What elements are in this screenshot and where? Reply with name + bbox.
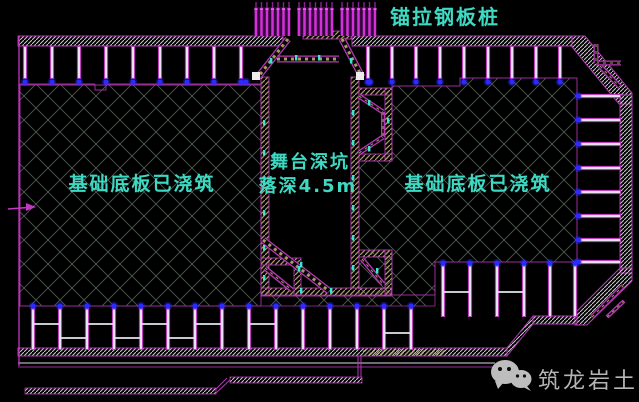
pile-node-dot bbox=[509, 79, 514, 84]
label-anchor-sheet-pile: 锚拉钢板桩 bbox=[390, 5, 500, 29]
survey-tick bbox=[263, 275, 265, 281]
wechat-icon bbox=[491, 360, 532, 391]
pile-node-dot bbox=[76, 79, 81, 84]
pile-node-dot bbox=[211, 79, 216, 84]
pile-node-dot bbox=[440, 260, 445, 265]
pile-node-dot bbox=[138, 303, 143, 308]
pile-node-dot bbox=[408, 303, 413, 308]
survey-tick bbox=[352, 235, 354, 241]
survey-tick bbox=[352, 265, 354, 271]
pit-bump-bottom bbox=[359, 154, 392, 161]
survey-tick bbox=[387, 118, 389, 124]
pile-node-dot bbox=[219, 303, 224, 308]
pile-node-dot bbox=[103, 79, 108, 84]
survey-tick bbox=[352, 110, 354, 116]
pile-node-dot bbox=[575, 237, 580, 242]
survey-tick bbox=[263, 120, 265, 126]
pile-node-dot bbox=[327, 303, 332, 308]
survey-tick bbox=[368, 146, 370, 152]
survey-tick bbox=[350, 58, 352, 64]
pile-node-dot bbox=[575, 189, 580, 194]
pile-node-dot bbox=[30, 303, 35, 308]
pile-node-dot bbox=[437, 79, 442, 84]
survey-tick bbox=[330, 288, 332, 294]
pit-box-right bbox=[385, 250, 392, 295]
label-pit-line2: 落深4.5m bbox=[259, 175, 358, 197]
survey-tick bbox=[295, 55, 297, 61]
pile-node-dot bbox=[575, 141, 580, 146]
pile-node-dot bbox=[243, 79, 248, 84]
survey-tick bbox=[263, 210, 265, 216]
pile-node-dot bbox=[246, 303, 251, 308]
corner-node bbox=[356, 72, 364, 80]
pit-bump-right bbox=[385, 88, 392, 161]
pile-node-dot bbox=[575, 165, 580, 170]
survey-tick bbox=[263, 150, 265, 156]
pile-node-dot bbox=[49, 79, 54, 84]
pile-node-dot bbox=[57, 303, 62, 308]
pile-node-dot bbox=[111, 303, 116, 308]
pile-node-dot bbox=[575, 93, 580, 98]
pile-node-dot bbox=[84, 303, 89, 308]
watermark: 筑龙岩土 bbox=[491, 360, 638, 394]
slab-left-region bbox=[20, 85, 261, 306]
label-slab-right: 基础底板已浇筑 bbox=[403, 172, 551, 195]
label-slab-left: 基础底板已浇筑 bbox=[67, 172, 215, 195]
watermark-text: 筑龙岩土 bbox=[538, 369, 638, 394]
pile-node-dot bbox=[557, 79, 562, 84]
pile-node-dot bbox=[485, 79, 490, 84]
survey-tick bbox=[376, 268, 378, 274]
pile-node-dot bbox=[165, 303, 170, 308]
survey-tick bbox=[300, 288, 302, 294]
corner-node bbox=[252, 72, 260, 80]
survey-tick bbox=[263, 245, 265, 251]
pile-node-dot bbox=[389, 79, 394, 84]
pile-node-dot bbox=[300, 303, 305, 308]
pile-node-dot bbox=[494, 260, 499, 265]
pile-node-dot bbox=[184, 79, 189, 84]
pile-node-dot bbox=[354, 303, 359, 308]
pile-node-dot bbox=[547, 260, 552, 265]
pile-node-dot bbox=[572, 260, 577, 265]
pile-node-dot bbox=[467, 260, 472, 265]
cad-site-plan: 锚拉钢板桩 舞台深坑 落深4.5m 基础底板已浇筑 基础底板已浇筑 筑龙岩土 bbox=[0, 0, 639, 402]
survey-tick bbox=[368, 100, 370, 106]
pile-node-dot bbox=[533, 79, 538, 84]
pile-node-dot bbox=[575, 117, 580, 122]
survey-tick bbox=[300, 262, 302, 268]
pile-node-dot bbox=[157, 79, 162, 84]
pile-node-dot bbox=[130, 79, 135, 84]
pile-node-dot bbox=[192, 303, 197, 308]
survey-tick bbox=[352, 140, 354, 146]
label-pit-line1: 舞台深坑 bbox=[270, 151, 350, 173]
bottom-band-b bbox=[533, 316, 577, 324]
pile-node-dot bbox=[381, 303, 386, 308]
pile-node-dot bbox=[575, 213, 580, 218]
right-band bbox=[620, 95, 632, 273]
survey-tick bbox=[352, 205, 354, 211]
pile-node-dot bbox=[22, 79, 27, 84]
pile-node-dot bbox=[367, 79, 372, 84]
survey-tick bbox=[318, 55, 320, 61]
bottom-outline bbox=[18, 356, 495, 394]
pile-node-dot bbox=[413, 79, 418, 84]
pile-node-dot bbox=[521, 260, 526, 265]
survey-tick bbox=[270, 58, 272, 64]
pile-node-dot bbox=[461, 79, 466, 84]
pile-node-dot bbox=[273, 303, 278, 308]
site-plan-drawing: 锚拉钢板桩 舞台深坑 落深4.5m 基础底板已浇筑 基础底板已浇筑 筑龙岩土 bbox=[0, 0, 639, 402]
